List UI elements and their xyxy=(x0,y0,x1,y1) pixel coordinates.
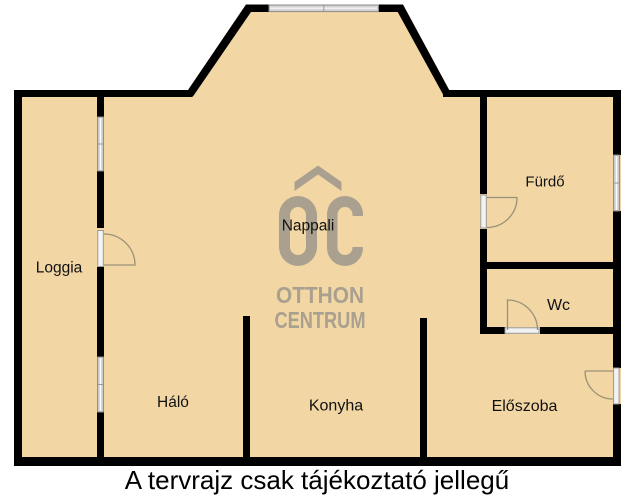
svg-text:Előszoba: Előszoba xyxy=(492,398,558,415)
svg-text:Wc: Wc xyxy=(547,297,570,314)
svg-text:OTTHON: OTTHON xyxy=(276,282,364,308)
svg-text:Nappali: Nappali xyxy=(282,218,335,235)
svg-text:A tervrajz csak tájékoztató je: A tervrajz csak tájékoztató jellegű xyxy=(125,465,509,495)
svg-text:CENTRUM: CENTRUM xyxy=(275,307,366,333)
svg-text:Konyha: Konyha xyxy=(309,398,363,415)
svg-text:Háló: Háló xyxy=(157,394,189,411)
svg-text:Fürdő: Fürdő xyxy=(525,174,564,191)
svg-text:Loggia: Loggia xyxy=(36,260,83,277)
